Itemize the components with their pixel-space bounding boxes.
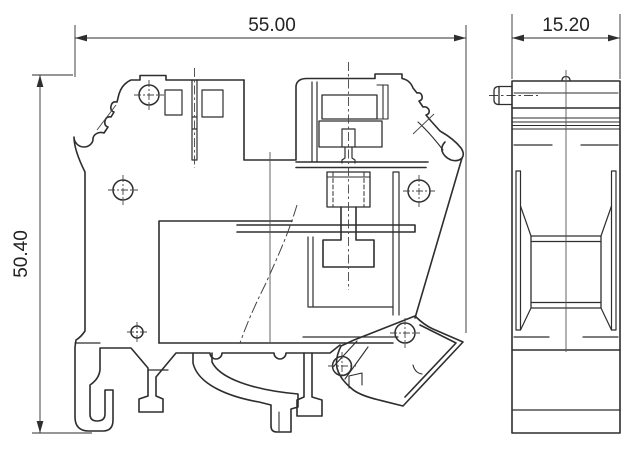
test-socket-right xyxy=(202,90,223,117)
right-serration-tick xyxy=(413,114,434,134)
hole-crosshairs xyxy=(108,80,435,380)
label-field xyxy=(159,221,292,343)
terminal-block-drawing: 55.00 50.40 15.20 xyxy=(0,0,638,460)
end-view xyxy=(494,77,620,434)
arrowhead-right-icon xyxy=(608,35,620,42)
housing-left-contour xyxy=(74,76,340,432)
clamp-right-wall xyxy=(393,172,399,315)
rail-spring-clip xyxy=(193,353,298,432)
clamp-cavity-walls xyxy=(312,82,317,162)
center-prong xyxy=(297,353,322,416)
side-slot xyxy=(377,85,388,119)
screw-guide-box xyxy=(322,95,377,119)
cage-walls xyxy=(308,237,393,307)
dimension-label-side-width: 15.20 xyxy=(542,15,590,36)
housing-right-contour xyxy=(244,74,463,318)
dimension-top-width xyxy=(75,25,466,333)
test-socket-left xyxy=(165,90,182,115)
center-lines xyxy=(195,62,539,290)
arrowhead-right-icon xyxy=(454,35,466,42)
busbar-lower xyxy=(237,225,415,232)
screw-head xyxy=(319,121,382,147)
dimension-label-height: 50.40 xyxy=(11,230,32,278)
right-foot xyxy=(337,316,464,406)
arrowhead-left-icon xyxy=(75,35,87,42)
arrowhead-bottom-icon xyxy=(37,421,44,433)
busbar-top xyxy=(296,162,428,168)
main-view xyxy=(74,74,463,432)
right-foot-bump xyxy=(413,365,422,374)
foot-notch xyxy=(349,373,362,388)
technical-drawing-canvas: 55.00 50.40 15.20 xyxy=(0,0,638,460)
dimension-left-height xyxy=(32,75,92,433)
dimension-label-width: 55.00 xyxy=(248,15,296,36)
arrowhead-left-icon xyxy=(512,35,524,42)
arrowhead-top-icon xyxy=(37,75,44,87)
